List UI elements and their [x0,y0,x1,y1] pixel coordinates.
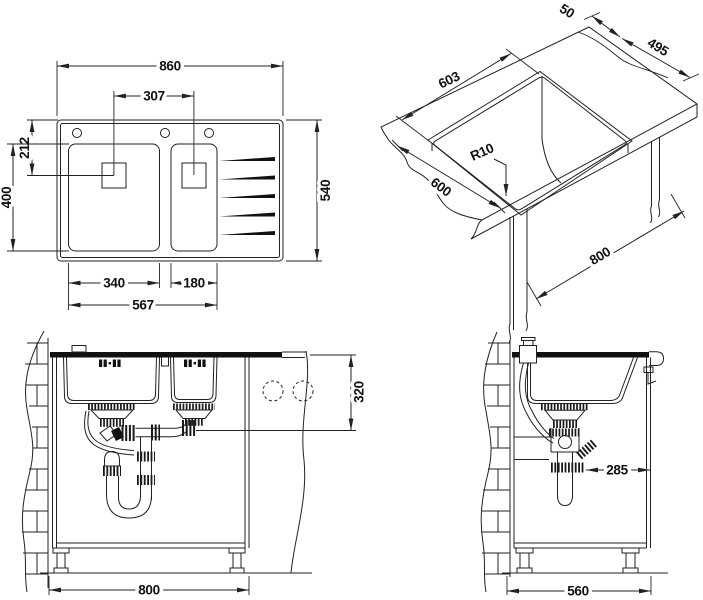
iso-cabinet-panels [509,138,660,344]
trap-union [559,436,572,449]
dim-drain-height: 320 [352,381,367,403]
side-dimensions: 285 560 [507,463,651,599]
sink-rim [428,72,632,216]
worktop-cutout [434,77,627,210]
side-view: 285 560 [481,332,668,599]
tap-hole-left [73,129,82,138]
countertop-section [50,352,282,358]
tap-hole-center [161,129,170,138]
front-view: 320 800 [22,331,367,598]
dim-left-bowl-width: 340 [103,276,125,291]
dim-bowl-length: 400 [0,187,14,209]
dim-rim-width: 50 [557,1,577,21]
drainer-grooves [219,157,275,235]
dim-drain-offset: 212 [17,137,32,159]
plan-view: 860 307 212 400 540 340 180 [0,59,333,313]
side-wall-bricks [481,332,510,592]
front-plumbing [85,407,215,518]
iso-worktop [381,27,697,239]
pipe-hole-left [263,381,283,401]
dim-overall-depth: 540 [318,180,333,202]
dim-cabinet-depth: 560 [567,584,589,599]
dishwasher-nozzle [579,443,594,456]
dim-corner-radius: R10 [468,140,496,163]
counter-upstand [72,346,86,353]
dim-right-bowl-width: 180 [183,276,205,291]
side-legs [516,548,639,573]
dim-overall-width: 860 [159,59,181,74]
dim-drain-wall-offset: 285 [606,463,628,478]
front-counter [50,346,308,574]
side-cabinet [502,358,668,574]
overflow-slots-left [99,360,121,368]
dim-drain-spacing: 307 [143,89,165,104]
tap-hole-right [205,129,214,138]
side-plumbing [541,407,594,506]
overflow-slots-right [184,360,206,368]
iso-view: 603 50 495 600 R10 800 [381,1,699,343]
dim-cabinet-width-iso: 800 [587,244,613,268]
dim-cutout-length: 603 [436,68,463,91]
overflow-box [520,346,537,364]
sink-clip [644,367,653,373]
counter-nose [649,352,664,366]
sink-technical-drawing: 860 307 212 400 540 340 180 [0,0,703,600]
dim-bowls-outer-width: 567 [132,298,154,313]
iso-dimensions: 603 50 495 600 R10 800 [392,1,699,306]
drawing-svg: 860 307 212 400 540 340 180 [0,0,703,600]
plan-sink-outline [57,120,283,261]
front-wall-bricks [22,331,48,592]
dim-cutout-width: 495 [645,35,672,59]
front-legs [53,548,245,573]
counter-break-edge [291,351,308,573]
dim-cabinet-width-front: 800 [138,583,160,598]
pipe-hole-right [293,381,313,401]
front-cabinet [40,358,313,574]
front-dimensions: 320 800 [49,355,367,598]
radius-leader [494,159,506,196]
front-bowls [64,358,218,404]
waste-pipe-end [558,495,573,506]
